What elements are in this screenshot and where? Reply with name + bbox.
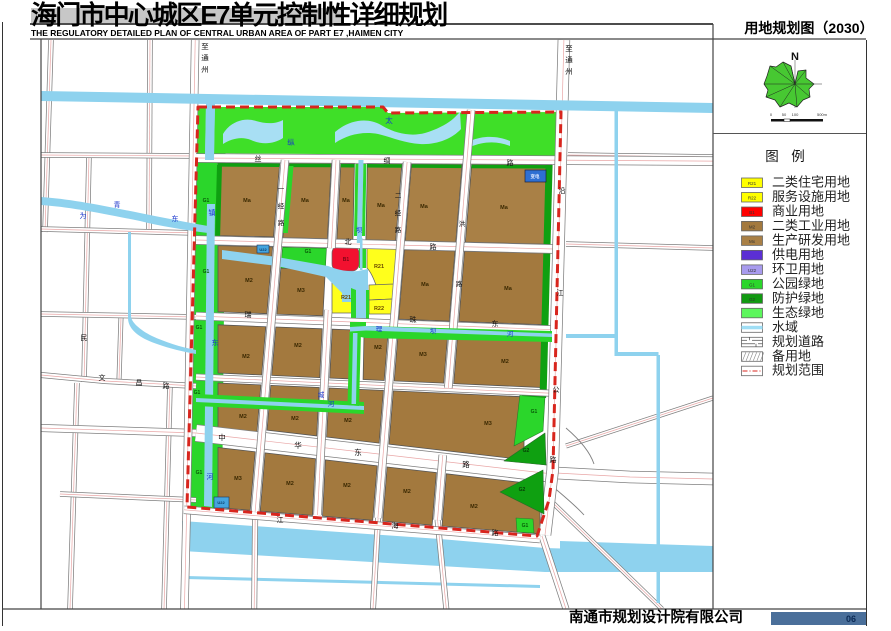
svg-text:供电用地: 供电用地 xyxy=(772,247,824,262)
svg-text:沿: 沿 xyxy=(559,186,566,195)
svg-text:环卫用地: 环卫用地 xyxy=(772,261,824,276)
svg-text:R21: R21 xyxy=(374,264,384,270)
svg-text:M3: M3 xyxy=(419,352,427,358)
svg-text:B1: B1 xyxy=(749,210,755,215)
svg-text:M2: M2 xyxy=(286,481,294,487)
svg-text:北: 北 xyxy=(345,238,352,246)
svg-text:洪: 洪 xyxy=(459,219,466,228)
svg-text:G1: G1 xyxy=(203,269,210,275)
svg-text:M3: M3 xyxy=(234,476,242,482)
svg-text:图: 图 xyxy=(765,149,779,164)
svg-text:路: 路 xyxy=(395,225,402,234)
svg-text:G2: G2 xyxy=(749,297,756,302)
svg-text:Ma: Ma xyxy=(243,198,252,204)
svg-text:生态绿地: 生态绿地 xyxy=(772,305,824,320)
svg-text:Ma: Ma xyxy=(420,204,429,210)
svg-text:Ma: Ma xyxy=(342,198,351,204)
svg-text:瑞: 瑞 xyxy=(245,310,252,319)
svg-text:B1: B1 xyxy=(343,257,350,263)
svg-text:服务设施用地: 服务设施用地 xyxy=(772,189,850,204)
svg-text:至: 至 xyxy=(201,42,209,51)
svg-text:海: 海 xyxy=(392,521,399,530)
svg-text:二类工业用地: 二类工业用地 xyxy=(772,218,850,233)
svg-text:G1: G1 xyxy=(196,470,203,476)
svg-text:U22: U22 xyxy=(748,268,757,273)
svg-text:公园绿地: 公园绿地 xyxy=(772,276,824,291)
svg-text:路: 路 xyxy=(462,459,470,469)
svg-text:R21: R21 xyxy=(748,181,757,186)
svg-text:G1: G1 xyxy=(194,390,201,396)
svg-text:M2: M2 xyxy=(239,414,247,420)
svg-text:Ma: Ma xyxy=(500,205,509,211)
svg-text:水域: 水域 xyxy=(772,319,798,334)
svg-text:青: 青 xyxy=(114,200,121,209)
svg-text:一: 一 xyxy=(278,186,285,193)
svg-text:M2: M2 xyxy=(291,416,299,422)
svg-text:州: 州 xyxy=(565,67,573,76)
svg-text:丝: 丝 xyxy=(255,154,262,163)
svg-text:G1: G1 xyxy=(203,198,210,204)
svg-text:东: 东 xyxy=(212,338,219,347)
svg-text:M3: M3 xyxy=(484,421,492,427)
svg-text:太: 太 xyxy=(385,115,393,125)
svg-text:备用地: 备用地 xyxy=(772,348,811,363)
svg-text:通: 通 xyxy=(201,53,209,63)
svg-text:M3: M3 xyxy=(297,288,305,294)
svg-text:珠: 珠 xyxy=(410,315,417,324)
svg-text:东: 东 xyxy=(172,214,179,223)
svg-text:M2: M2 xyxy=(294,343,302,349)
svg-text:城: 城 xyxy=(318,391,325,399)
svg-text:中: 中 xyxy=(218,432,226,442)
svg-text:为: 为 xyxy=(80,211,87,220)
svg-text:坝: 坝 xyxy=(430,326,437,335)
svg-text:M2: M2 xyxy=(343,483,351,489)
svg-text:纵: 纵 xyxy=(287,138,295,147)
svg-text:M2: M2 xyxy=(403,489,411,495)
svg-text:用地规划图（2030）: 用地规划图（2030） xyxy=(744,20,873,36)
svg-text:东: 东 xyxy=(354,447,362,457)
svg-text:G2: G2 xyxy=(519,487,526,493)
svg-text:M2: M2 xyxy=(242,354,250,360)
svg-text:M2: M2 xyxy=(470,504,478,510)
svg-text:Ma: Ma xyxy=(301,198,310,204)
svg-text:M2: M2 xyxy=(749,224,756,229)
svg-text:路: 路 xyxy=(430,242,437,251)
svg-text:绸: 绸 xyxy=(384,156,391,165)
svg-text:路: 路 xyxy=(456,279,463,288)
svg-text:路: 路 xyxy=(492,528,499,537)
svg-text:至: 至 xyxy=(565,44,573,53)
svg-text:G1: G1 xyxy=(305,249,312,255)
svg-text:R21: R21 xyxy=(341,295,351,301)
svg-text:河: 河 xyxy=(207,473,214,481)
svg-text:理: 理 xyxy=(376,325,383,333)
svg-text:海门市中心城区E7单元控制性详细规划: 海门市中心城区E7单元控制性详细规划 xyxy=(31,0,447,30)
svg-text:通: 通 xyxy=(565,55,573,65)
svg-text:坝: 坝 xyxy=(356,225,363,234)
svg-text:THE REGULATORY DETAILED PLAN O: THE REGULATORY DETAILED PLAN OF CENTRAL … xyxy=(31,28,404,38)
svg-text:昌: 昌 xyxy=(136,379,143,387)
svg-text:M2: M2 xyxy=(374,345,382,351)
svg-text:例: 例 xyxy=(791,149,805,164)
svg-text:G1: G1 xyxy=(749,282,756,287)
svg-text:Ma: Ma xyxy=(421,282,430,288)
svg-text:二类住宅用地: 二类住宅用地 xyxy=(772,175,850,190)
svg-text:50: 50 xyxy=(782,112,787,117)
svg-text:公: 公 xyxy=(553,386,560,394)
svg-text:G1: G1 xyxy=(522,523,529,529)
svg-text:文: 文 xyxy=(99,373,106,382)
svg-text:Ma: Ma xyxy=(377,203,386,209)
svg-text:G1: G1 xyxy=(531,409,538,415)
svg-text:06: 06 xyxy=(846,614,856,624)
svg-text:G2: G2 xyxy=(523,448,530,454)
svg-text:民: 民 xyxy=(81,334,88,342)
svg-text:R22: R22 xyxy=(374,306,384,312)
svg-text:河: 河 xyxy=(507,330,514,338)
svg-text:R22: R22 xyxy=(748,195,757,200)
svg-text:州: 州 xyxy=(201,65,209,74)
svg-text:G1: G1 xyxy=(196,325,203,331)
svg-text:江: 江 xyxy=(277,516,284,524)
svg-text:华: 华 xyxy=(294,440,302,450)
svg-text:生产研发用地: 生产研发用地 xyxy=(772,232,850,247)
svg-text:东: 东 xyxy=(492,319,499,328)
svg-text:U22: U22 xyxy=(259,247,267,252)
svg-text:Mx: Mx xyxy=(749,239,756,244)
svg-text:二: 二 xyxy=(395,193,402,200)
svg-text:变电: 变电 xyxy=(531,173,540,180)
svg-text:规划范围: 规划范围 xyxy=(772,363,824,378)
svg-text:河: 河 xyxy=(328,400,335,408)
svg-text:M2: M2 xyxy=(501,359,509,365)
svg-text:商业用地: 商业用地 xyxy=(772,203,824,218)
svg-text:路: 路 xyxy=(278,218,285,227)
svg-text:经: 经 xyxy=(395,208,402,217)
svg-text:南通市规划设计院有限公司: 南通市规划设计院有限公司 xyxy=(569,608,743,626)
svg-text:路: 路 xyxy=(507,158,514,167)
svg-text:M2: M2 xyxy=(245,278,253,284)
svg-text:路: 路 xyxy=(163,381,170,390)
svg-text:Ma: Ma xyxy=(504,286,513,292)
svg-text:U22: U22 xyxy=(217,500,225,505)
svg-text:路: 路 xyxy=(550,455,557,464)
svg-text:防护绿地: 防护绿地 xyxy=(772,290,824,305)
svg-text:规划道路: 规划道路 xyxy=(772,334,824,349)
svg-text:M2: M2 xyxy=(344,418,352,424)
svg-text:500m: 500m xyxy=(817,112,828,117)
svg-text:100: 100 xyxy=(792,112,799,117)
svg-text:江: 江 xyxy=(557,289,564,297)
svg-text:镇: 镇 xyxy=(209,208,216,217)
svg-text:经: 经 xyxy=(278,201,285,210)
